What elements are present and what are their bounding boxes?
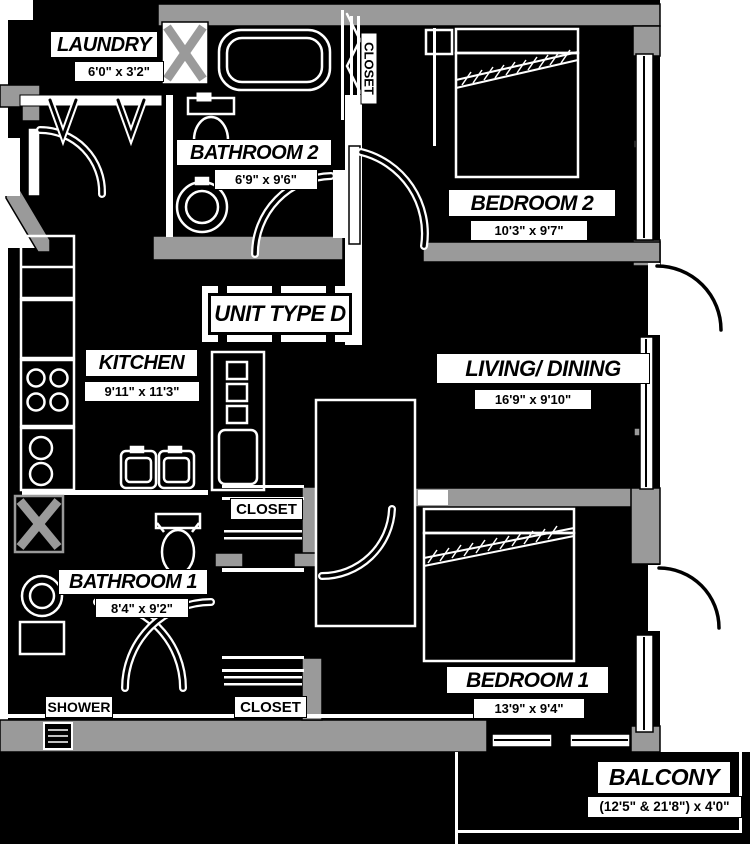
laundry-dims: 6'0" x 3'2" xyxy=(74,61,164,82)
laundry-label: LAUNDRY xyxy=(50,31,158,58)
balcony-dims: (12'5" & 21'8") x 4'0" xyxy=(587,796,742,818)
bathroom1-label: BATHROOM 1 xyxy=(58,569,208,595)
balcony-label: BALCONY xyxy=(597,761,731,794)
closet-top-label: CLOSET xyxy=(361,33,378,105)
bedroom1-dims: 13'9" x 9'4" xyxy=(473,698,585,719)
washer-dryer-icon xyxy=(162,22,208,84)
hallway-box xyxy=(316,400,415,626)
bedroom1-side-window xyxy=(636,635,653,732)
bedroom2-label: BEDROOM 2 xyxy=(448,189,616,217)
closet-bottom-label: CLOSET xyxy=(234,696,307,718)
bathroom2-dims: 6'9" x 9'6" xyxy=(214,169,318,190)
kitchen-dims: 9'11" x 11'3" xyxy=(84,381,200,402)
shower-label: SHOWER xyxy=(45,696,113,718)
shower-door-icon xyxy=(44,723,72,749)
living-dining-label: LIVING/ DINING xyxy=(436,353,650,384)
bedroom2-window xyxy=(636,54,653,240)
living-dining-dims: 16'9" x 9'10" xyxy=(474,389,592,410)
bedroom2-dims: 10'3" x 9'7" xyxy=(470,220,588,241)
bedroom1-label: BEDROOM 1 xyxy=(446,666,609,694)
floor-plan: LAUNDRY 6'0" x 3'2" CLOSET BATHROOM 2 6'… xyxy=(0,0,750,844)
closet-mid-label: CLOSET xyxy=(230,498,303,520)
shower-stall-icon xyxy=(15,496,63,552)
kitchen-label: KITCHEN xyxy=(85,349,198,377)
unit-type-title: UNIT TYPE D xyxy=(208,293,352,335)
bathroom1-dims: 8'4" x 9'2" xyxy=(95,598,189,618)
bathroom2-label: BATHROOM 2 xyxy=(176,139,332,166)
